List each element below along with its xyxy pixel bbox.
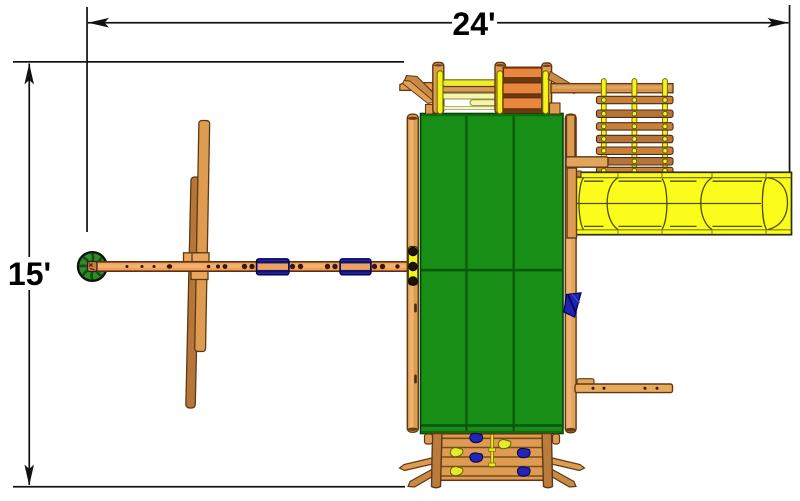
svg-text:15': 15' bbox=[8, 256, 51, 292]
svg-text:24': 24' bbox=[452, 6, 495, 42]
